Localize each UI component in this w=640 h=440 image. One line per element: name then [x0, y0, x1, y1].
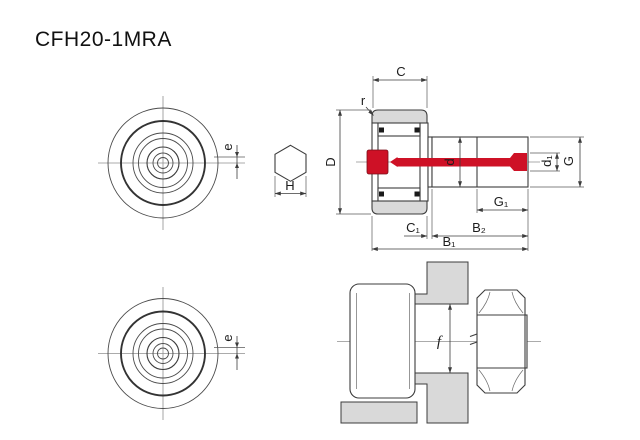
drawing-canvas: CFH20-1MRA e	[0, 0, 640, 440]
e-arrow-down	[235, 343, 239, 348]
dim-label-d1: d₁	[539, 155, 554, 167]
dim-label-C1: C₁	[406, 220, 420, 235]
dim-label-G1: G₁	[494, 194, 509, 209]
dim-label-d: d	[442, 158, 457, 165]
hex-view: H	[275, 145, 306, 197]
front-view-bottom: e	[98, 287, 245, 420]
front-view-top: e	[98, 96, 245, 230]
roller-outline	[350, 284, 415, 398]
thread-mark	[470, 342, 477, 345]
cross-section-view: C r D d d₁ G G₁	[323, 64, 584, 251]
grease-fitting-hole	[367, 150, 388, 174]
dim-label-G: G	[561, 156, 576, 166]
inner-ring-bottom	[378, 188, 420, 201]
dim-label-B2: B₂	[472, 220, 486, 235]
dim-label-f: f	[437, 334, 443, 350]
seal-top-left	[379, 128, 384, 133]
hexagon	[275, 145, 306, 181]
seal-bottom-left	[379, 192, 384, 197]
dim-label-C: C	[396, 64, 405, 79]
lube-hole-end	[510, 153, 527, 171]
dim-label-H: H	[285, 178, 294, 193]
e-arrow-up	[235, 354, 239, 359]
seal-bottom-right	[415, 192, 420, 197]
lube-hole-cone	[390, 157, 398, 167]
technical-drawing: e H	[0, 0, 640, 440]
inner-ring-top	[378, 123, 420, 136]
dim-label-e-top: e	[220, 143, 235, 150]
seal-top-right	[415, 128, 420, 133]
track-plate	[341, 402, 417, 423]
e-arrow-down	[235, 152, 239, 157]
mounting-plate-upper	[415, 262, 468, 304]
thread-mark	[470, 334, 477, 337]
e-arrow-up	[235, 163, 239, 168]
dim-label-e-bottom: e	[220, 334, 235, 341]
mounted-view: f	[337, 262, 541, 423]
dim-label-r: r	[361, 93, 366, 108]
dim-label-B1: B₁	[442, 234, 456, 249]
dim-label-D: D	[323, 157, 338, 166]
r-leader	[366, 107, 374, 116]
roller-section-top	[372, 110, 427, 123]
roller-section-bottom	[372, 201, 427, 214]
mounting-plate-lower	[415, 373, 468, 423]
